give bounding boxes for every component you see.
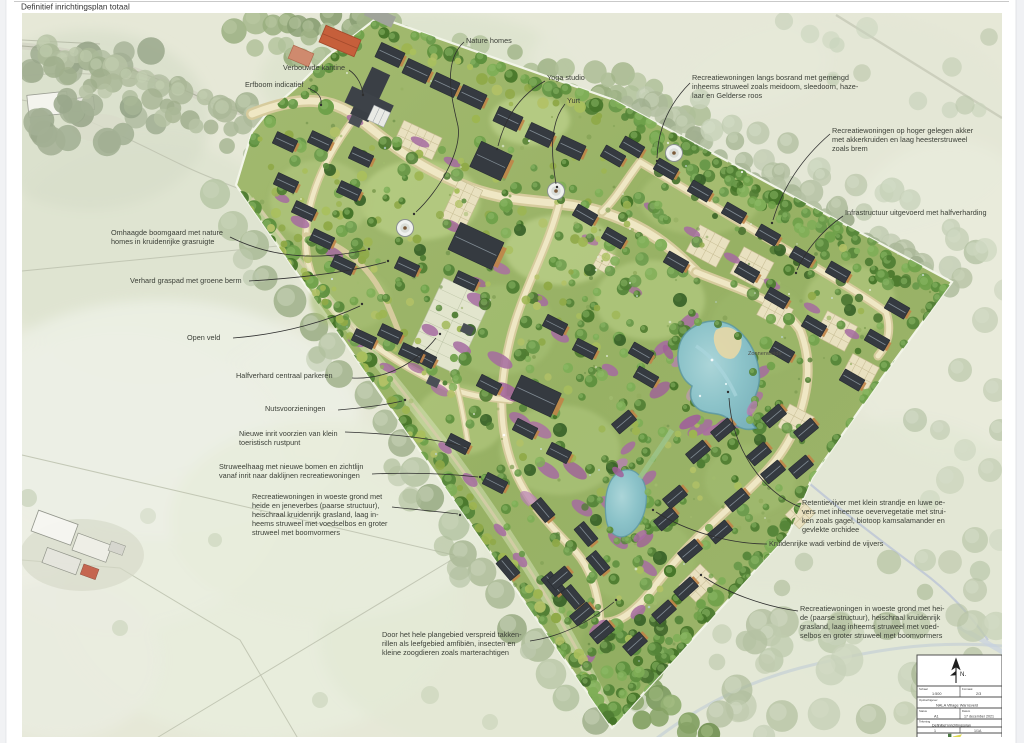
svg-text:N.: N.: [960, 671, 966, 678]
svg-text:Status: Status: [919, 709, 928, 713]
svg-text:1:500: 1:500: [932, 692, 942, 696]
svg-text:Nature homes: Nature homes: [466, 36, 512, 45]
svg-text:Definitief inrichtingsplan: Definitief inrichtingsplan: [932, 723, 971, 727]
svg-text:Verhard graspad met groene ber: Verhard graspad met groene berm: [130, 276, 242, 285]
svg-text:Opdrachtgever: Opdrachtgever: [919, 698, 938, 702]
svg-text:A1: A1: [934, 715, 939, 719]
svg-text:Yoga studio: Yoga studio: [547, 73, 585, 82]
svg-text:1/1A: 1/1A: [974, 729, 982, 733]
svg-text:NALA Village Warnsveld: NALA Village Warnsveld: [936, 703, 978, 708]
svg-text:Struweelhaag met nieuwe bomen: Struweelhaag met nieuwe bomen en zichtli…: [219, 462, 363, 480]
svg-text:Tekening: Tekening: [919, 720, 931, 724]
svg-text:Datum: Datum: [962, 709, 971, 713]
svg-text:17 december 2021: 17 december 2021: [964, 715, 994, 719]
svg-text:Formaat: Formaat: [962, 687, 973, 691]
svg-text:Door het hele plangebied versp: Door het hele plangebied verspreid takke…: [382, 630, 522, 657]
svg-text:Kruidenrijke wadi verbind de v: Kruidenrijke wadi verbind de vijvers: [769, 539, 884, 548]
svg-text:Omhaagde boomgaard met natureh: Omhaagde boomgaard met naturehomes in kr…: [111, 228, 223, 246]
svg-text:Open veld: Open veld: [187, 333, 220, 342]
svg-text:Schaal: Schaal: [919, 687, 928, 691]
svg-text:2/3: 2/3: [976, 692, 981, 696]
svg-text:Zonnenweide: Zonnenweide: [748, 351, 782, 357]
svg-text:Nutsvoorzieningen: Nutsvoorzieningen: [265, 404, 325, 413]
svg-text:Definitief inrichtingsplan tot: Definitief inrichtingsplan totaal: [21, 3, 130, 12]
svg-text:Recreatiewoningen in woeste gr: Recreatiewoningen in woeste grond met he…: [800, 604, 945, 640]
svg-text:Erfboom indicatief: Erfboom indicatief: [245, 80, 304, 89]
svg-text:1: 1: [934, 729, 936, 733]
svg-text:Verbouwde kantine: Verbouwde kantine: [283, 63, 345, 72]
svg-text:Infrastructuur uitgevoerd met: Infrastructuur uitgevoerd met halfverhar…: [845, 208, 987, 217]
svg-text:Halfverhard centraal parkeren: Halfverhard centraal parkeren: [236, 371, 333, 380]
svg-text:Yurt: Yurt: [567, 96, 580, 105]
